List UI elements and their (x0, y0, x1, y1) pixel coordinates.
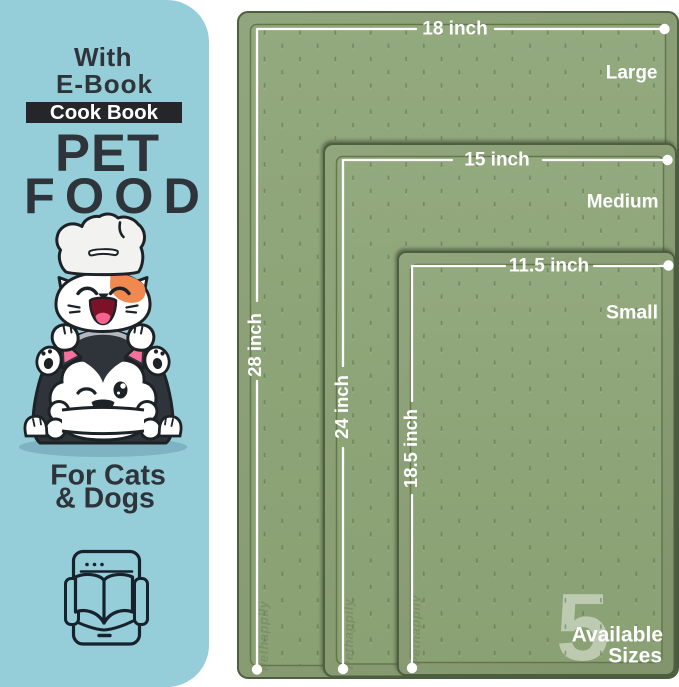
svg-text:E-Book: E-Book (56, 69, 153, 99)
svg-text:18.5 inch: 18.5 inch (400, 409, 421, 488)
svg-text:11.5 inch: 11.5 inch (509, 256, 589, 277)
svg-text:Medium: Medium (587, 192, 659, 213)
svg-text:With: With (74, 42, 132, 72)
svg-text:Sizes: Sizes (608, 645, 662, 668)
svg-text:28 inch: 28 inch (244, 313, 265, 377)
svg-text:Available: Available (572, 624, 663, 647)
svg-text:Cook Book: Cook Book (50, 101, 159, 124)
svg-text:& Dogs: & Dogs (55, 483, 155, 515)
svg-text:Large: Large (606, 63, 658, 84)
svg-text:18 inch: 18 inch (422, 19, 487, 40)
svg-text:Pethappily: Pethappily (256, 600, 271, 671)
svg-text:Small: Small (606, 302, 658, 324)
svg-text:24 inch: 24 inch (331, 375, 352, 439)
svg-text:Pethappily: Pethappily (408, 594, 423, 665)
svg-text:15 inch: 15 inch (464, 150, 529, 171)
